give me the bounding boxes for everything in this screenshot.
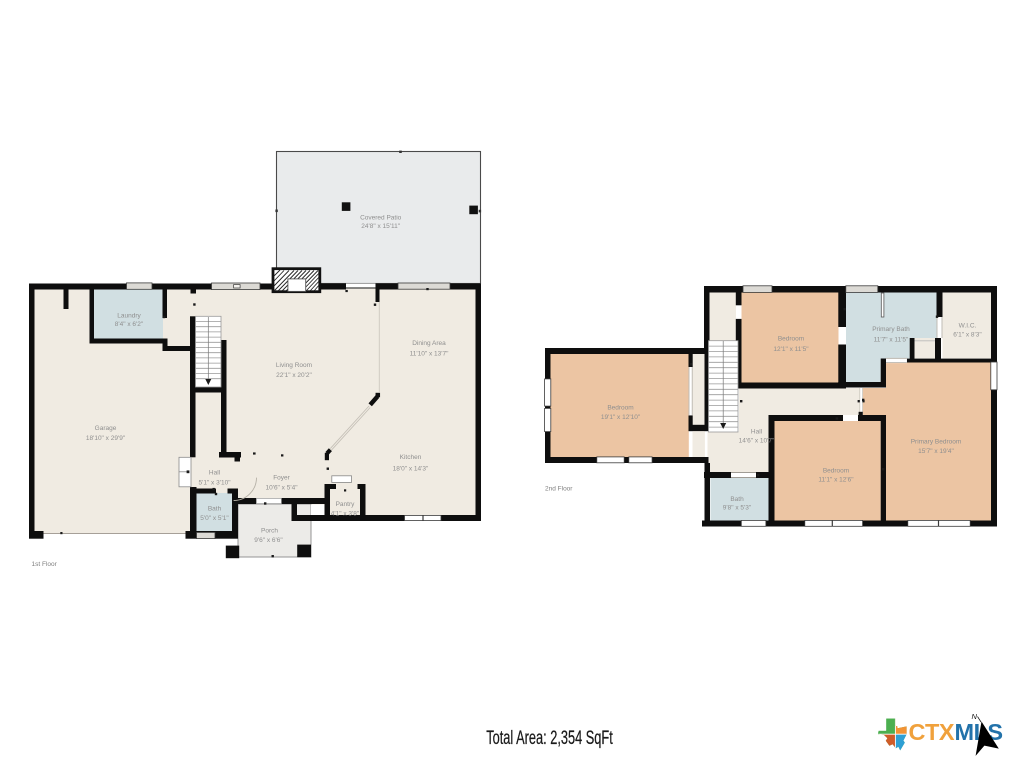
- svg-text:Garage: Garage: [95, 425, 117, 432]
- svg-text:N: N: [972, 712, 978, 721]
- svg-text:Foyer: Foyer: [273, 475, 290, 482]
- svg-text:5'0" x 5'1": 5'0" x 5'1": [200, 515, 229, 522]
- svg-text:Bedroom: Bedroom: [823, 468, 849, 475]
- svg-text:24'8" x 15'11": 24'8" x 15'11": [361, 223, 400, 230]
- svg-text:Primary Bath: Primary Bath: [872, 326, 910, 333]
- svg-text:Primary Bedroom: Primary Bedroom: [911, 439, 962, 446]
- svg-text:CTX: CTX: [909, 719, 955, 745]
- svg-text:6'1" x 8'3": 6'1" x 8'3": [953, 332, 982, 339]
- svg-text:Pantry: Pantry: [336, 501, 356, 508]
- svg-text:Hall: Hall: [751, 429, 763, 436]
- svg-text:12'1" x 11'5": 12'1" x 11'5": [773, 346, 809, 353]
- svg-text:W.I.C.: W.I.C.: [959, 323, 977, 330]
- svg-text:10'6" x 5'4": 10'6" x 5'4": [265, 485, 298, 492]
- svg-text:18'0" x 14'3": 18'0" x 14'3": [393, 466, 429, 473]
- svg-text:14'6" x 10'7": 14'6" x 10'7": [739, 438, 775, 445]
- svg-text:4'1" x 3'8": 4'1" x 3'8": [331, 511, 360, 518]
- svg-text:Bedroom: Bedroom: [607, 405, 633, 412]
- svg-text:9'6" x 6'6": 9'6" x 6'6": [254, 537, 283, 544]
- svg-text:9'8" x 5'3": 9'8" x 5'3": [723, 505, 752, 512]
- svg-text:1st Floor: 1st Floor: [32, 561, 58, 568]
- svg-text:Total Area: 2,354 SqFt: Total Area: 2,354 SqFt: [486, 728, 613, 749]
- svg-text:Hall: Hall: [209, 470, 221, 477]
- svg-text:Bedroom: Bedroom: [778, 336, 804, 343]
- svg-text:Covered Patio: Covered Patio: [360, 215, 402, 222]
- svg-text:Dining Area: Dining Area: [412, 340, 446, 347]
- svg-text:22'1" x 20'2": 22'1" x 20'2": [276, 372, 312, 379]
- svg-text:15'7" x 19'4": 15'7" x 19'4": [918, 448, 954, 455]
- svg-text:2nd Floor: 2nd Floor: [545, 486, 573, 493]
- svg-text:Porch: Porch: [261, 528, 278, 535]
- svg-text:Kitchen: Kitchen: [400, 454, 422, 461]
- svg-text:Bath: Bath: [208, 506, 222, 513]
- svg-text:8'4" x 6'2": 8'4" x 6'2": [115, 321, 144, 328]
- svg-text:11'10" x 13'7": 11'10" x 13'7": [410, 351, 449, 358]
- svg-text:Bath: Bath: [730, 496, 744, 503]
- svg-text:11'7" x 11'5": 11'7" x 11'5": [874, 337, 909, 344]
- svg-text:Living Room: Living Room: [276, 362, 312, 369]
- svg-text:18'10" x 29'9": 18'10" x 29'9": [86, 435, 126, 442]
- svg-text:Laundry: Laundry: [117, 312, 141, 319]
- svg-text:11'1" x 12'6": 11'1" x 12'6": [818, 477, 854, 484]
- svg-text:19'1" x 12'10": 19'1" x 12'10": [601, 414, 641, 421]
- svg-text:5'1" x 3'10": 5'1" x 3'10": [198, 480, 231, 487]
